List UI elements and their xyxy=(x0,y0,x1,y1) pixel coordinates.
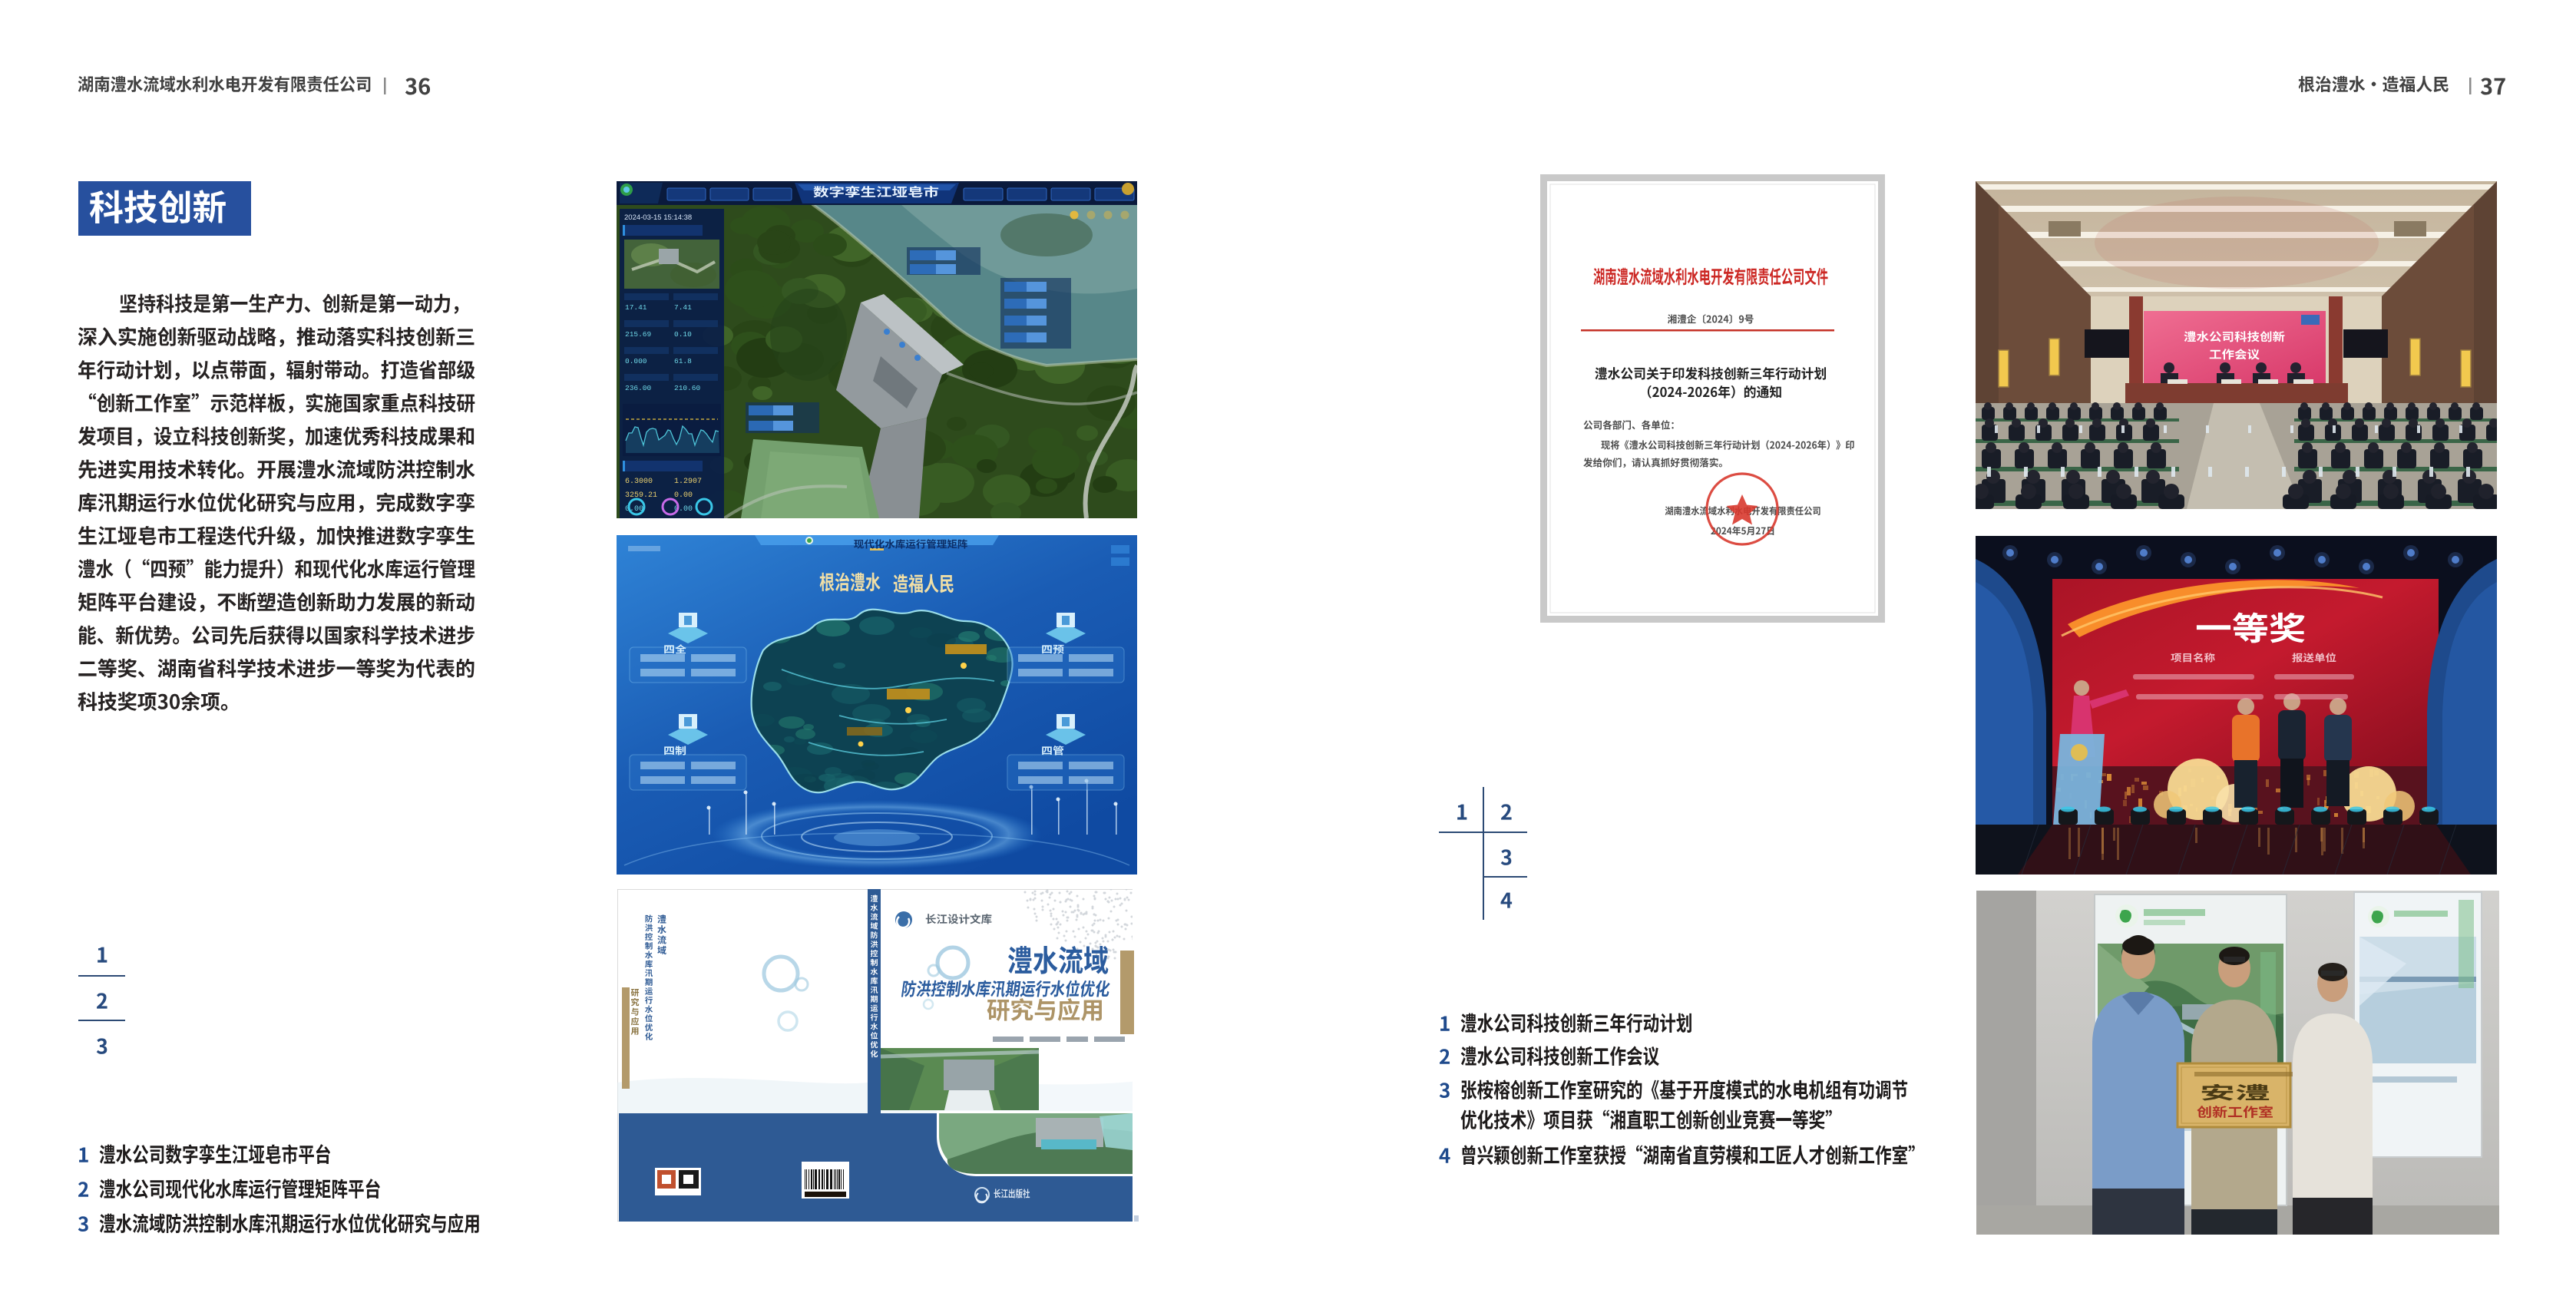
svg-text:0.10: 0.10 xyxy=(674,330,692,339)
svg-text:2024-03-15 15:14:38: 2024-03-15 15:14:38 xyxy=(624,213,692,222)
svg-text:61.8: 61.8 xyxy=(674,357,692,365)
svg-text:0.000: 0.000 xyxy=(625,357,647,365)
svg-text:7.41: 7.41 xyxy=(674,303,692,312)
svg-text:3259.21: 3259.21 xyxy=(625,491,657,500)
svg-text:215.69: 215.69 xyxy=(625,330,652,339)
svg-text:1.2907: 1.2907 xyxy=(674,478,702,486)
svg-text:17.41: 17.41 xyxy=(625,303,647,312)
svg-text:236.00: 236.00 xyxy=(625,384,652,392)
svg-text:6.3000: 6.3000 xyxy=(625,478,653,486)
svg-text:0.00: 0.00 xyxy=(674,491,693,500)
svg-text:210.60: 210.60 xyxy=(674,384,701,392)
